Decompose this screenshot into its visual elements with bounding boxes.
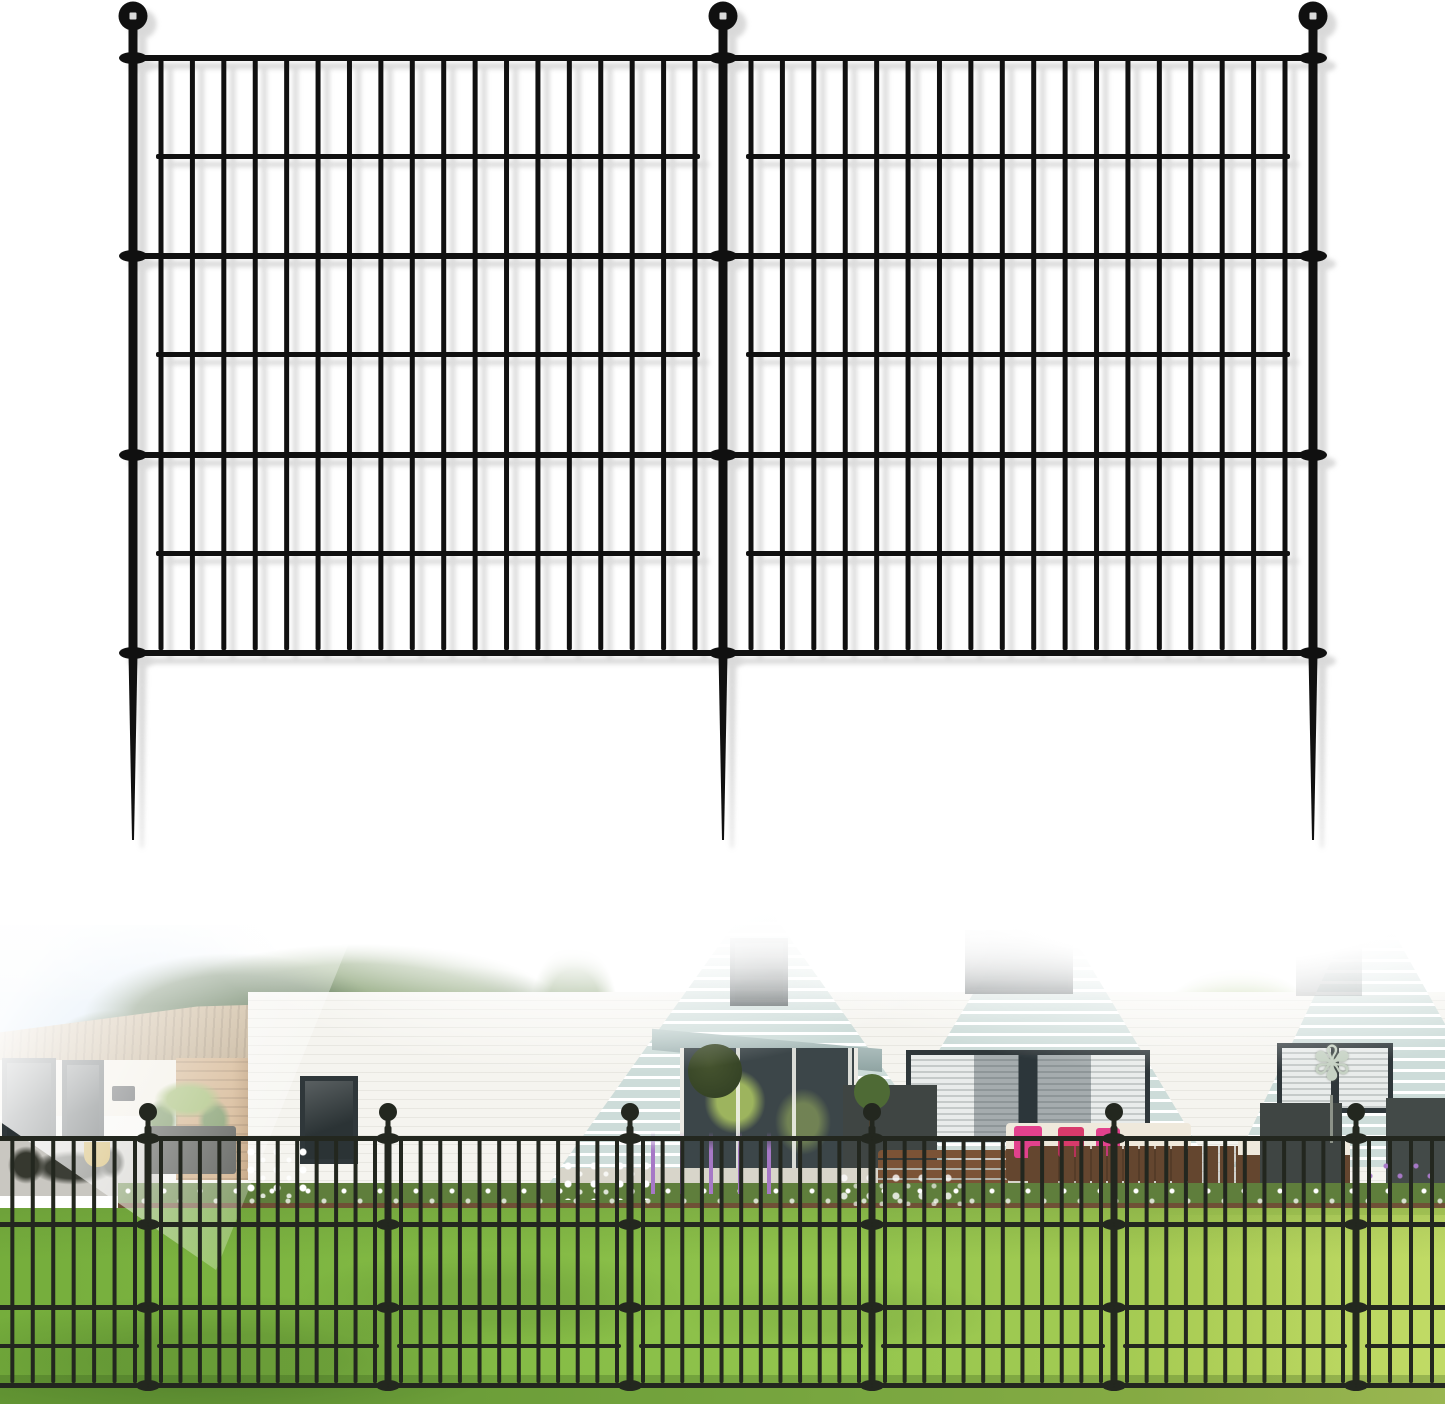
photo-fence-render — [0, 880, 1445, 1404]
lifestyle-photo: ✾ — [0, 880, 1445, 1404]
product-fence-render — [0, 0, 1445, 880]
product-image-canvas: ✾ — [0, 0, 1445, 1404]
